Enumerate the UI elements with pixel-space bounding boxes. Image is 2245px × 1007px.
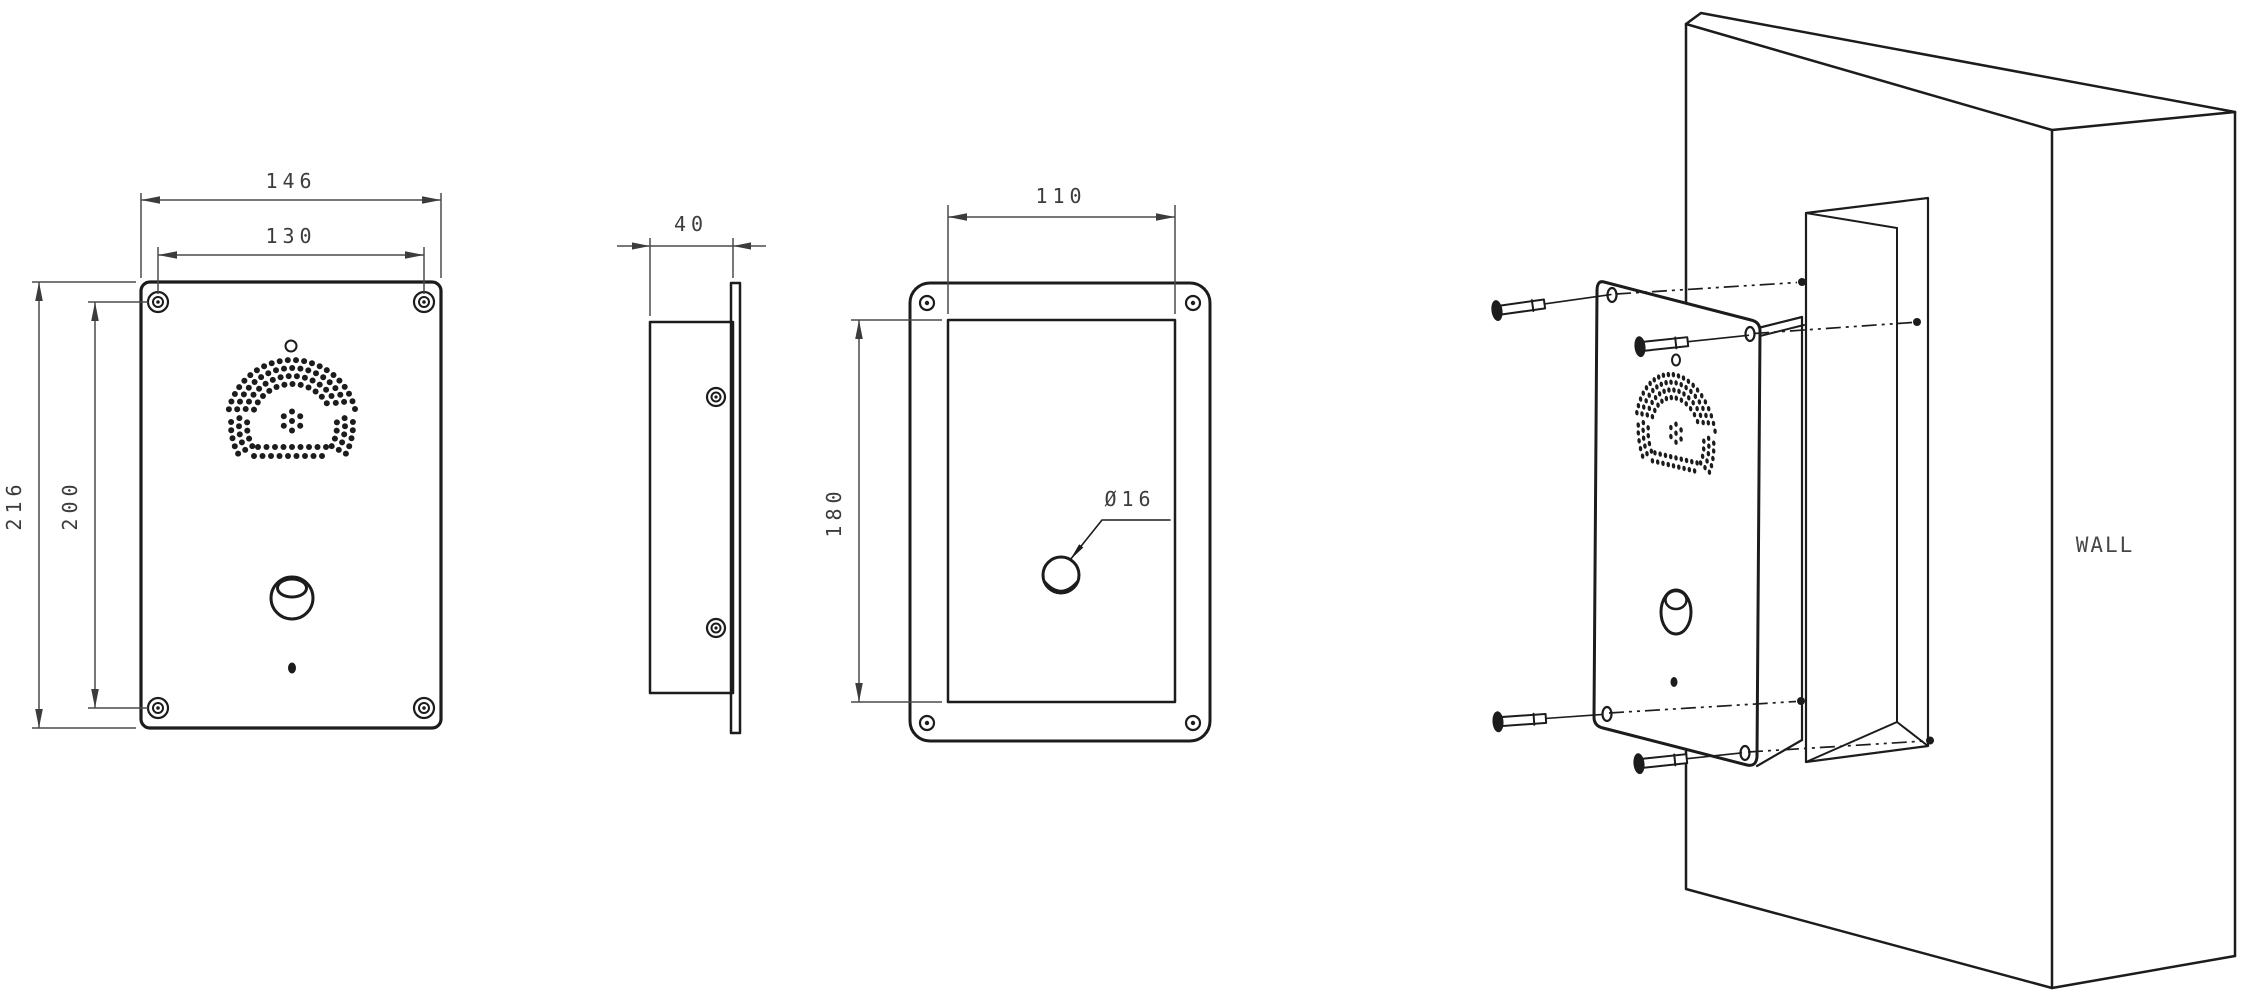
- side-screw: [707, 619, 725, 637]
- arrowhead-icon: [948, 213, 967, 221]
- arrowhead-icon: [1070, 544, 1083, 560]
- dim-label: 180: [822, 486, 846, 537]
- technical-drawing: 146 130 216 200: [0, 0, 2245, 1007]
- flange-hole: [920, 296, 934, 310]
- arrowhead-icon: [422, 196, 441, 204]
- arrowhead-icon: [91, 302, 99, 321]
- drawing-sheet: 146 130 216 200: [0, 0, 2245, 1007]
- side-view: 40: [617, 212, 766, 733]
- indicator-hole: [286, 341, 297, 352]
- front-panel-3d: [1594, 282, 1760, 766]
- corner-screw: [414, 698, 434, 718]
- dim-label: Ø16: [1104, 487, 1155, 511]
- arrowhead-icon: [91, 689, 99, 708]
- dim-label: 40: [674, 212, 708, 236]
- arrowhead-icon: [141, 196, 160, 204]
- dimension-hole-diameter: Ø16: [1070, 487, 1170, 560]
- cable-hole: [1043, 557, 1079, 593]
- arrowhead-icon: [158, 251, 177, 259]
- call-button: [271, 577, 313, 619]
- rear-flange-outline: [910, 283, 1210, 741]
- front-view: 146 130 216 200: [2, 169, 441, 728]
- arrowhead-icon: [632, 242, 650, 249]
- dim-label: 200: [58, 479, 82, 530]
- dim-label: 130: [265, 224, 316, 248]
- rear-box-opening: [948, 320, 1175, 702]
- flange-hole: [1186, 716, 1200, 730]
- rear-view: Ø16 110 180: [822, 184, 1210, 741]
- arrowhead-icon: [733, 242, 751, 249]
- dimension-rear-width: 110: [948, 184, 1175, 314]
- dim-label: 216: [2, 479, 26, 530]
- wall-3d-view: WALL: [1490, 13, 2235, 988]
- arrowhead-icon: [35, 282, 43, 301]
- anchor-dot: [1926, 737, 1934, 745]
- rear-box-3d: [1757, 317, 1804, 766]
- mounting-screw: [1490, 284, 1612, 322]
- dim-label: 146: [265, 169, 316, 193]
- arrowhead-icon: [855, 320, 863, 339]
- wall-niche: [1806, 198, 1928, 762]
- mounting-screw: [1492, 704, 1604, 733]
- corner-screw: [148, 698, 168, 718]
- dimension-rear-height: 180: [822, 320, 942, 702]
- anchor-dot: [1798, 278, 1806, 286]
- dimension-height-inner: 200: [58, 302, 148, 708]
- arrowhead-icon: [1156, 213, 1175, 221]
- arrowhead-icon: [35, 709, 43, 728]
- side-box-outline: [650, 322, 733, 693]
- wall-label: WALL: [2076, 533, 2135, 557]
- mic-hole-3d: [1671, 677, 1678, 687]
- dim-label: 110: [1035, 184, 1086, 208]
- speaker-grille: [226, 357, 358, 459]
- arrowhead-icon: [405, 251, 424, 259]
- anchor-dot: [1797, 697, 1805, 705]
- mic-hole: [288, 663, 296, 674]
- side-screw: [707, 388, 725, 406]
- corner-screw: [414, 292, 434, 312]
- flange-hole: [1186, 296, 1200, 310]
- anchor-dot: [1913, 318, 1921, 326]
- corner-screw: [148, 292, 168, 312]
- dimension-depth: 40: [617, 212, 766, 316]
- front-panel-outline: [141, 282, 441, 728]
- arrowhead-icon: [855, 683, 863, 702]
- flange-hole: [920, 716, 934, 730]
